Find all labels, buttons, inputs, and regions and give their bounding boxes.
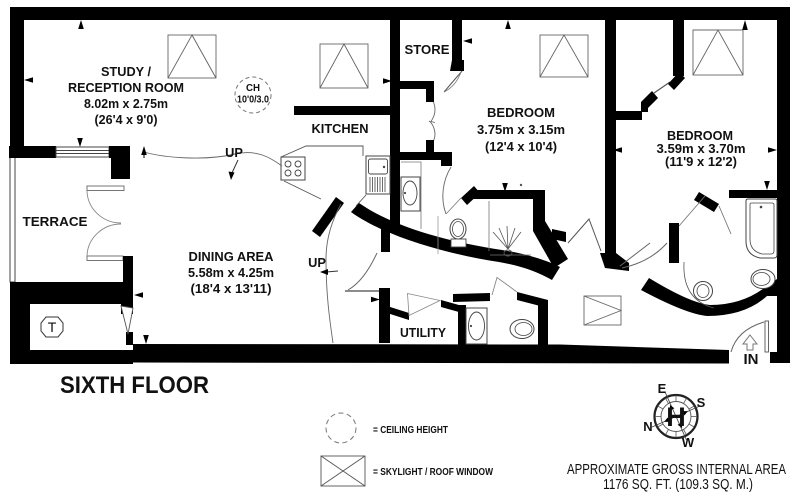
svg-text:UP: UP bbox=[225, 145, 243, 160]
svg-text:10'0/3.0: 10'0/3.0 bbox=[237, 94, 269, 106]
svg-text:APPROXIMATE GROSS INTERNAL ARE: APPROXIMATE GROSS INTERNAL AREA bbox=[567, 462, 786, 478]
svg-text:8.02m x 2.75m: 8.02m x 2.75m bbox=[84, 96, 168, 111]
svg-text:SIXTH FLOOR: SIXTH FLOOR bbox=[60, 372, 209, 399]
svg-text:IN: IN bbox=[744, 351, 759, 368]
svg-text:= CEILING HEIGHT: = CEILING HEIGHT bbox=[373, 425, 449, 436]
svg-text:T: T bbox=[48, 319, 57, 335]
svg-text:(26'4 x 9'0): (26'4 x 9'0) bbox=[95, 112, 158, 127]
svg-text:(18'4 x 13'11): (18'4 x 13'11) bbox=[191, 281, 272, 296]
svg-text:S: S bbox=[697, 395, 706, 410]
svg-text:(12'4 x 10'4): (12'4 x 10'4) bbox=[485, 139, 557, 154]
svg-text:W: W bbox=[682, 435, 695, 450]
svg-text:5.58m x 4.25m: 5.58m x 4.25m bbox=[188, 265, 274, 280]
svg-text:E: E bbox=[658, 381, 667, 396]
svg-text:N: N bbox=[643, 419, 652, 434]
svg-text:KITCHEN: KITCHEN bbox=[312, 121, 369, 136]
svg-text:(11'9 x 12'2): (11'9 x 12'2) bbox=[665, 154, 737, 169]
svg-text:H: H bbox=[666, 402, 686, 432]
svg-text:BEDROOM: BEDROOM bbox=[487, 105, 555, 120]
svg-text:RECEPTION ROOM: RECEPTION ROOM bbox=[68, 80, 184, 95]
svg-text:STUDY /: STUDY / bbox=[101, 64, 151, 79]
svg-text:UTILITY: UTILITY bbox=[400, 325, 446, 340]
svg-text:DINING AREA: DINING AREA bbox=[189, 249, 274, 264]
svg-text:TERRACE: TERRACE bbox=[23, 214, 88, 229]
svg-text:STORE: STORE bbox=[405, 42, 450, 57]
svg-text:CH: CH bbox=[246, 82, 260, 94]
svg-text:3.75m x 3.15m: 3.75m x 3.15m bbox=[477, 122, 565, 137]
svg-text:UP: UP bbox=[308, 255, 326, 270]
svg-text:1176 SQ. FT. (109.3 SQ. M.): 1176 SQ. FT. (109.3 SQ. M.) bbox=[603, 477, 753, 493]
svg-text:= SKYLIGHT / ROOF WINDOW: = SKYLIGHT / ROOF WINDOW bbox=[373, 467, 493, 478]
